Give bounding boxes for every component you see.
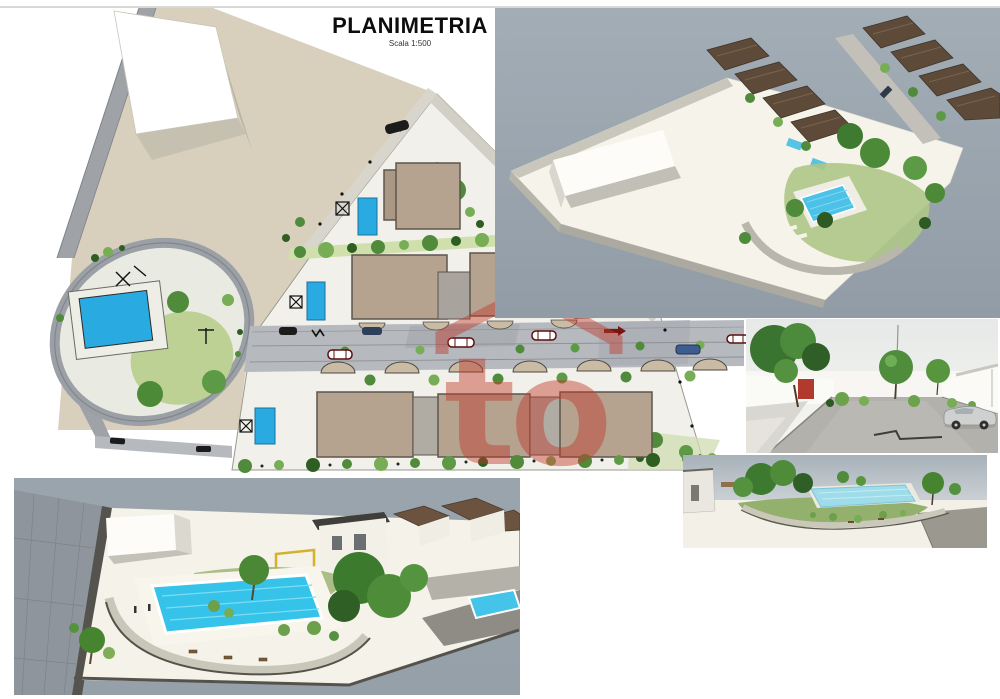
- plan-scale-label: Scala 1:500: [322, 39, 498, 48]
- plan-title: PLANIMETRIA: [322, 14, 498, 38]
- red-structure: [798, 379, 814, 399]
- main-pool-3d-render: [14, 478, 520, 695]
- pool-garden-3d-render: [683, 455, 987, 548]
- watermark-letters: to: [444, 326, 607, 500]
- street-level-3d-render: [746, 319, 998, 453]
- main-plan-pool: [68, 281, 168, 360]
- page-root: PLANIMETRIA Scala 1:500: [0, 0, 1000, 699]
- aerial-3d-render: [495, 8, 1000, 318]
- title-block: PLANIMETRIA Scala 1:500: [322, 14, 498, 48]
